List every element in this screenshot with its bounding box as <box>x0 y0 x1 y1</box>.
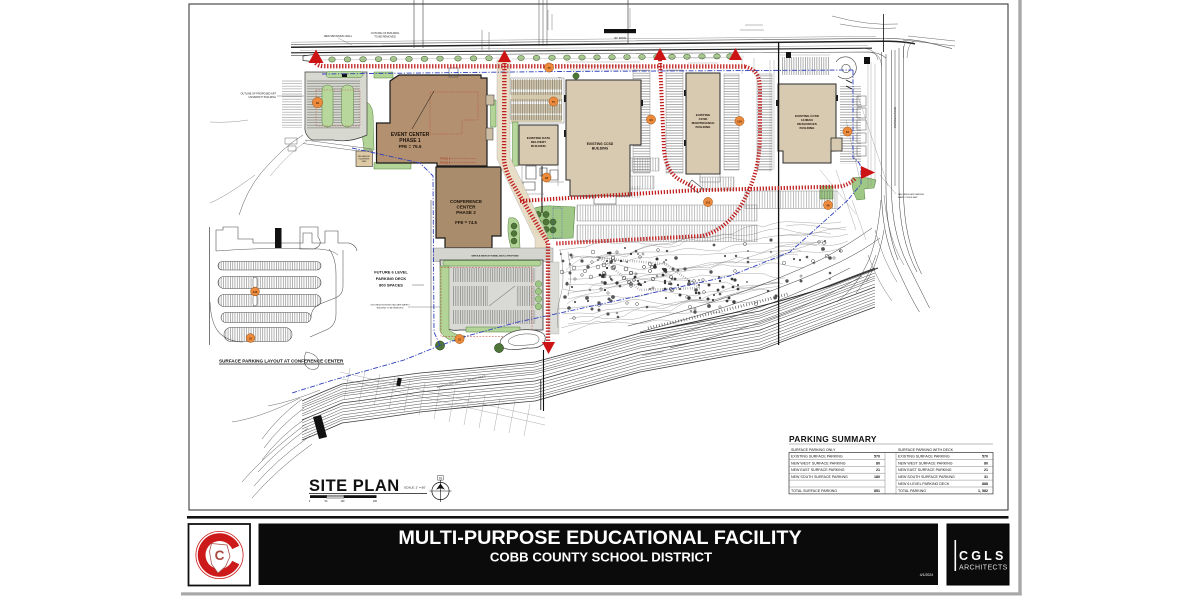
svg-text:80: 80 <box>876 461 880 465</box>
svg-text:SEE LANDSCAPE PARKING: SEE LANDSCAPE PARKING <box>898 193 925 196</box>
svg-text:N: N <box>439 476 442 480</box>
svg-text:C: C <box>215 548 225 563</box>
svg-text:NEW 6 LEVEL PARKING DECK: NEW 6 LEVEL PARKING DECK <box>898 482 950 486</box>
svg-text:648: 648 <box>253 290 258 294</box>
svg-text:28: 28 <box>545 176 549 180</box>
svg-text:TO BE REMOVED: TO BE REMOVED <box>374 35 396 39</box>
svg-text:SERVICE DRIVE AT TUNNEL DECK &: SERVICE DRIVE AT TUNNEL DECK & PROPOSED <box>471 255 519 258</box>
svg-text:PARKING DECK: PARKING DECK <box>376 276 407 281</box>
svg-text:31: 31 <box>458 337 462 341</box>
svg-text:EXISTING CCSD: EXISTING CCSD <box>587 142 614 146</box>
svg-text:FFE = 75.5: FFE = 75.5 <box>399 144 422 149</box>
svg-text:BUILDING: BUILDING <box>592 147 609 151</box>
svg-text:30' ROW: 30' ROW <box>614 36 626 40</box>
svg-text:OUTLINE OF BUILDING: OUTLINE OF BUILDING <box>371 31 400 35</box>
svg-text:31: 31 <box>984 475 988 479</box>
svg-text:OUTLINE AT EXISTING TAILGATE S: OUTLINE AT EXISTING TAILGATE SAFETY <box>370 304 410 307</box>
svg-text:CGLS: CGLS <box>959 549 1007 563</box>
svg-text:80: 80 <box>984 461 988 465</box>
svg-text:90: 90 <box>649 118 653 122</box>
svg-text:888: 888 <box>982 482 988 486</box>
svg-text:EXISTING SURFACE PARKING: EXISTING SURFACE PARKING <box>898 454 950 458</box>
svg-text:1, 582: 1, 582 <box>978 489 988 493</box>
svg-text:SURFACE PARKING LAYOUT AT CONF: SURFACE PARKING LAYOUT AT CONFERENCE CEN… <box>219 359 344 364</box>
svg-text:PARKING SUMMARY: PARKING SUMMARY <box>789 434 877 444</box>
svg-text:200: 200 <box>373 500 378 503</box>
svg-text:TOTAL PARKING: TOTAL PARKING <box>898 489 926 493</box>
svg-text:BUILDING: BUILDING <box>800 126 816 130</box>
svg-text:4/1/2024: 4/1/2024 <box>920 573 933 577</box>
svg-text:BUILDING TO BE REMOVED: BUILDING TO BE REMOVED <box>377 307 404 309</box>
svg-text:NEW SOUTH SURFACE PARKING: NEW SOUTH SURFACE PARKING <box>791 475 848 479</box>
svg-text:21: 21 <box>984 468 988 472</box>
svg-text:SURFACE PARKING WITH DECK: SURFACE PARKING WITH DECK <box>898 448 954 452</box>
svg-text:CONFERENCE: CONFERENCE <box>450 199 482 204</box>
svg-text:MULTI-PURPOSE EDUCATIONAL FACI: MULTI-PURPOSE EDUCATIONAL FACILITY <box>398 527 801 549</box>
svg-text:101: 101 <box>705 200 710 204</box>
svg-text:81: 81 <box>846 130 850 134</box>
svg-text:FRANKLIN ROAD: FRANKLIN ROAD <box>893 107 897 128</box>
svg-text:180: 180 <box>874 475 880 479</box>
svg-text:BUILDING: BUILDING <box>696 125 712 129</box>
svg-text:851: 851 <box>874 489 880 493</box>
svg-text:SURFACE PARKING ONLY: SURFACE PARKING ONLY <box>791 448 836 452</box>
svg-text:FFE = 74.5: FFE = 74.5 <box>455 220 477 225</box>
svg-text:NEW RETAINING WALL: NEW RETAINING WALL <box>324 34 353 38</box>
svg-text:800 SPACES: 800 SPACES <box>379 283 403 288</box>
svg-text:57: 57 <box>552 100 556 104</box>
svg-text:BUILDING: BUILDING <box>531 144 547 148</box>
svg-text:UNIVERSITY BUILDING: UNIVERSITY BUILDING <box>249 96 277 99</box>
svg-text:FUTURE 6 LEVEL: FUTURE 6 LEVEL <box>374 270 408 275</box>
svg-text:84: 84 <box>316 101 320 105</box>
svg-text:570: 570 <box>982 454 988 458</box>
svg-text:570: 570 <box>874 454 880 458</box>
svg-text:100: 100 <box>341 500 346 503</box>
svg-text:ARCHITECTS: ARCHITECTS <box>959 565 1008 572</box>
svg-text:NEW EAST SURFACE PARKING: NEW EAST SURFACE PARKING <box>898 468 952 472</box>
svg-text:NEW WEST SURFACE PARKING: NEW WEST SURFACE PARKING <box>791 461 846 465</box>
svg-text:COBB COUNTY SCHOOL DISTRICT: COBB COUNTY SCHOOL DISTRICT <box>490 550 712 565</box>
svg-text:21: 21 <box>876 468 880 472</box>
svg-text:NEW EAST SURFACE PARKING: NEW EAST SURFACE PARKING <box>791 468 845 472</box>
svg-text:RAMP CONSULTANT: RAMP CONSULTANT <box>898 196 918 199</box>
svg-text:PHASE 1: PHASE 1 <box>440 158 451 161</box>
svg-text:NEW WEST SURFACE PARKING: NEW WEST SURFACE PARKING <box>898 461 953 465</box>
svg-text:PHASE 2: PHASE 2 <box>440 162 451 165</box>
svg-text:EXISTING SURFACE PARKING: EXISTING SURFACE PARKING <box>791 454 843 458</box>
svg-text:46: 46 <box>826 203 830 207</box>
svg-text:75: 75 <box>547 66 551 70</box>
svg-text:SITE PLAN: SITE PLAN <box>309 477 400 495</box>
svg-text:105: 105 <box>737 119 742 123</box>
svg-text:TOTAL SURFACE PARKING: TOTAL SURFACE PARKING <box>791 489 837 493</box>
svg-text:NEW SOUTH SURFACE PARKING: NEW SOUTH SURFACE PARKING <box>898 475 955 479</box>
svg-text:SCALE: 1" = 60': SCALE: 1" = 60' <box>404 486 426 490</box>
svg-text:PHASE 2: PHASE 2 <box>456 210 476 215</box>
svg-text:YARD: YARD <box>362 160 368 163</box>
svg-text:CENTER: CENTER <box>457 205 477 210</box>
